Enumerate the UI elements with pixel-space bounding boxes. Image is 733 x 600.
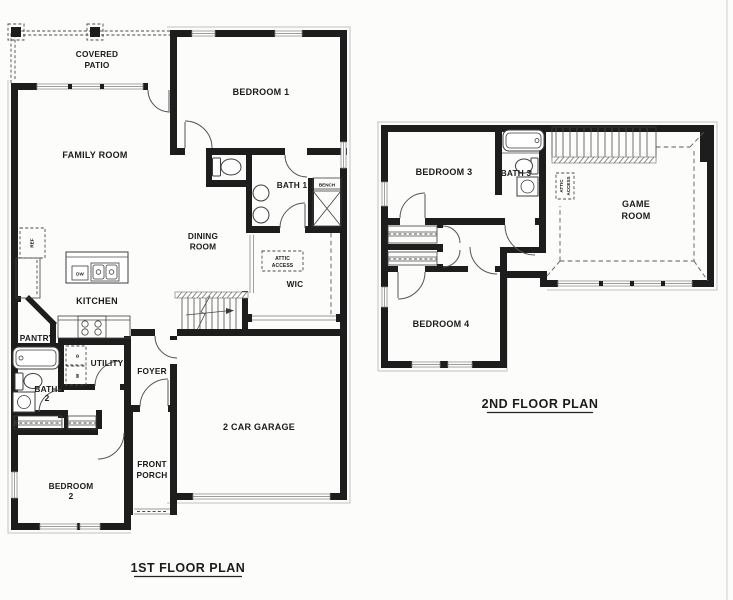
room-label-covered-patio: COVERED [76,49,118,59]
plan-title-1: 1ST FLOOR PLAN [131,561,246,575]
svg-text:PATIO: PATIO [84,60,109,70]
garage-door-icon [193,494,330,499]
svg-text:2: 2 [45,393,50,403]
second-floor-title: 2ND FLOOR PLAN [482,397,599,413]
stairs-icon [175,292,248,330]
toilet-icon [221,159,241,175]
room-label-dining: DINING [188,231,218,241]
room-label-bath1: BATH 1 [277,180,308,190]
label-attic-access: ATTIC [275,256,290,262]
closet-door-arc [443,250,460,267]
bath1-door-arc [285,155,307,177]
patio-door-arc [148,90,170,112]
label-dryer: D [75,354,80,358]
bedroom4-door-arc [398,272,425,299]
room-label-utility: UTILITY [91,358,124,368]
first-floor-title: 1ST FLOOR PLAN [131,561,246,577]
room-label-foyer: FOYER [137,366,167,376]
first-floor-plan: COVERED PATIO FAMILY ROOM BEDROOM 1 BATH… [8,24,350,577]
room-label-family-room: FAMILY ROOM [62,150,127,160]
floor-plan-sheet: COVERED PATIO FAMILY ROOM BEDROOM 1 BATH… [0,0,733,600]
pantry-corner-wall [27,297,55,325]
porch-steps [134,509,170,514]
stairs-icon [552,127,656,163]
svg-text:PORCH: PORCH [137,470,168,480]
kitchen-counter [58,316,130,338]
floor-plan-drawing: COVERED PATIO FAMILY ROOM BEDROOM 1 BATH… [0,0,733,600]
bath2-fixtures [13,347,59,412]
room-label-bedroom4: BEDROOM 4 [413,319,470,329]
svg-text:ROOM: ROOM [622,211,651,221]
room-label-bath3: BATH 3 [501,168,532,178]
sink-icon [253,207,269,223]
label-washer: W [75,373,80,378]
plan-title-2: 2ND FLOOR PLAN [482,397,599,411]
room-label-kitchen: KITCHEN [76,296,118,306]
closet-door-arc [443,226,460,243]
patio-post-icon [11,27,21,37]
second-floor-plan: BEDROOM 3 BATH 3 ATTIC ACCESS GAME ROOM … [378,122,717,413]
label-bench: BENCH [319,183,336,188]
bath1-fixtures [213,158,342,226]
front-door-arc [140,379,168,407]
label-dw: DW [76,272,84,277]
walls [381,125,714,368]
room-label-wic: WIC [287,279,304,289]
hall-door-arc [470,247,497,274]
room-label-bedroom3: BEDROOM 3 [416,167,473,177]
hall-closets [14,416,96,429]
room-label-bedroom1: BEDROOM 1 [233,87,290,97]
range-icon [78,316,106,338]
label-ref: REF [30,238,35,247]
room-label-pantry: PANTRY [20,333,55,343]
bath3-fixtures [502,130,544,196]
toilet-tank-icon [15,373,23,390]
room-label-garage: 2 CAR GARAGE [223,422,295,432]
toilet-tank-icon [213,158,221,176]
vanity [13,392,35,412]
bedroom3-door-arc [400,193,425,218]
svg-text:ACCESS: ACCESS [566,176,571,195]
wic-openings [250,233,336,320]
room-label-bedroom2: BEDROOM [49,481,94,491]
bath1-hall-door-arc [280,203,305,228]
svg-text:ROOM: ROOM [190,242,217,252]
bedroom1-door-arc [185,121,212,148]
bedroom2-door-arc [98,433,124,459]
room-label-game-room: GAME [622,199,650,209]
room-label-front-porch: FRONT [137,459,167,469]
patio-post-icon [90,27,100,37]
svg-text:ACCESS: ACCESS [272,263,294,269]
kitchen-wall-counter [16,258,40,298]
label-attic-access: ATTIC [559,179,564,193]
sink-icon [253,185,269,201]
svg-text:2: 2 [69,491,74,501]
